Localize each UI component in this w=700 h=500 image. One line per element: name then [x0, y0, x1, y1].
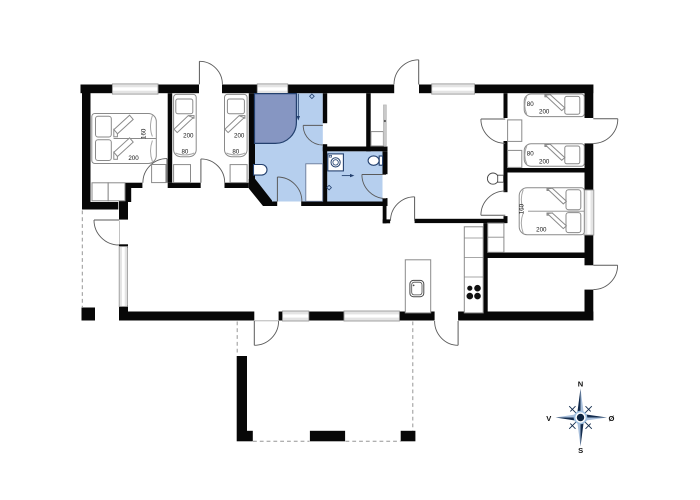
svg-text:80: 80 — [527, 151, 534, 158]
svg-text:N: N — [578, 380, 583, 389]
svg-text:80: 80 — [181, 148, 188, 155]
svg-text:80: 80 — [232, 148, 239, 155]
svg-text:200: 200 — [539, 109, 550, 116]
svg-text:160: 160 — [141, 128, 148, 139]
svg-text:200: 200 — [536, 226, 547, 233]
svg-text:200: 200 — [539, 158, 550, 165]
svg-text:80: 80 — [527, 101, 534, 108]
svg-text:200: 200 — [234, 133, 245, 140]
svg-text:Ø: Ø — [609, 414, 615, 423]
svg-text:200: 200 — [183, 133, 194, 140]
svg-text:S: S — [578, 446, 583, 455]
svg-text:160: 160 — [518, 203, 525, 214]
svg-text:200: 200 — [128, 155, 139, 162]
